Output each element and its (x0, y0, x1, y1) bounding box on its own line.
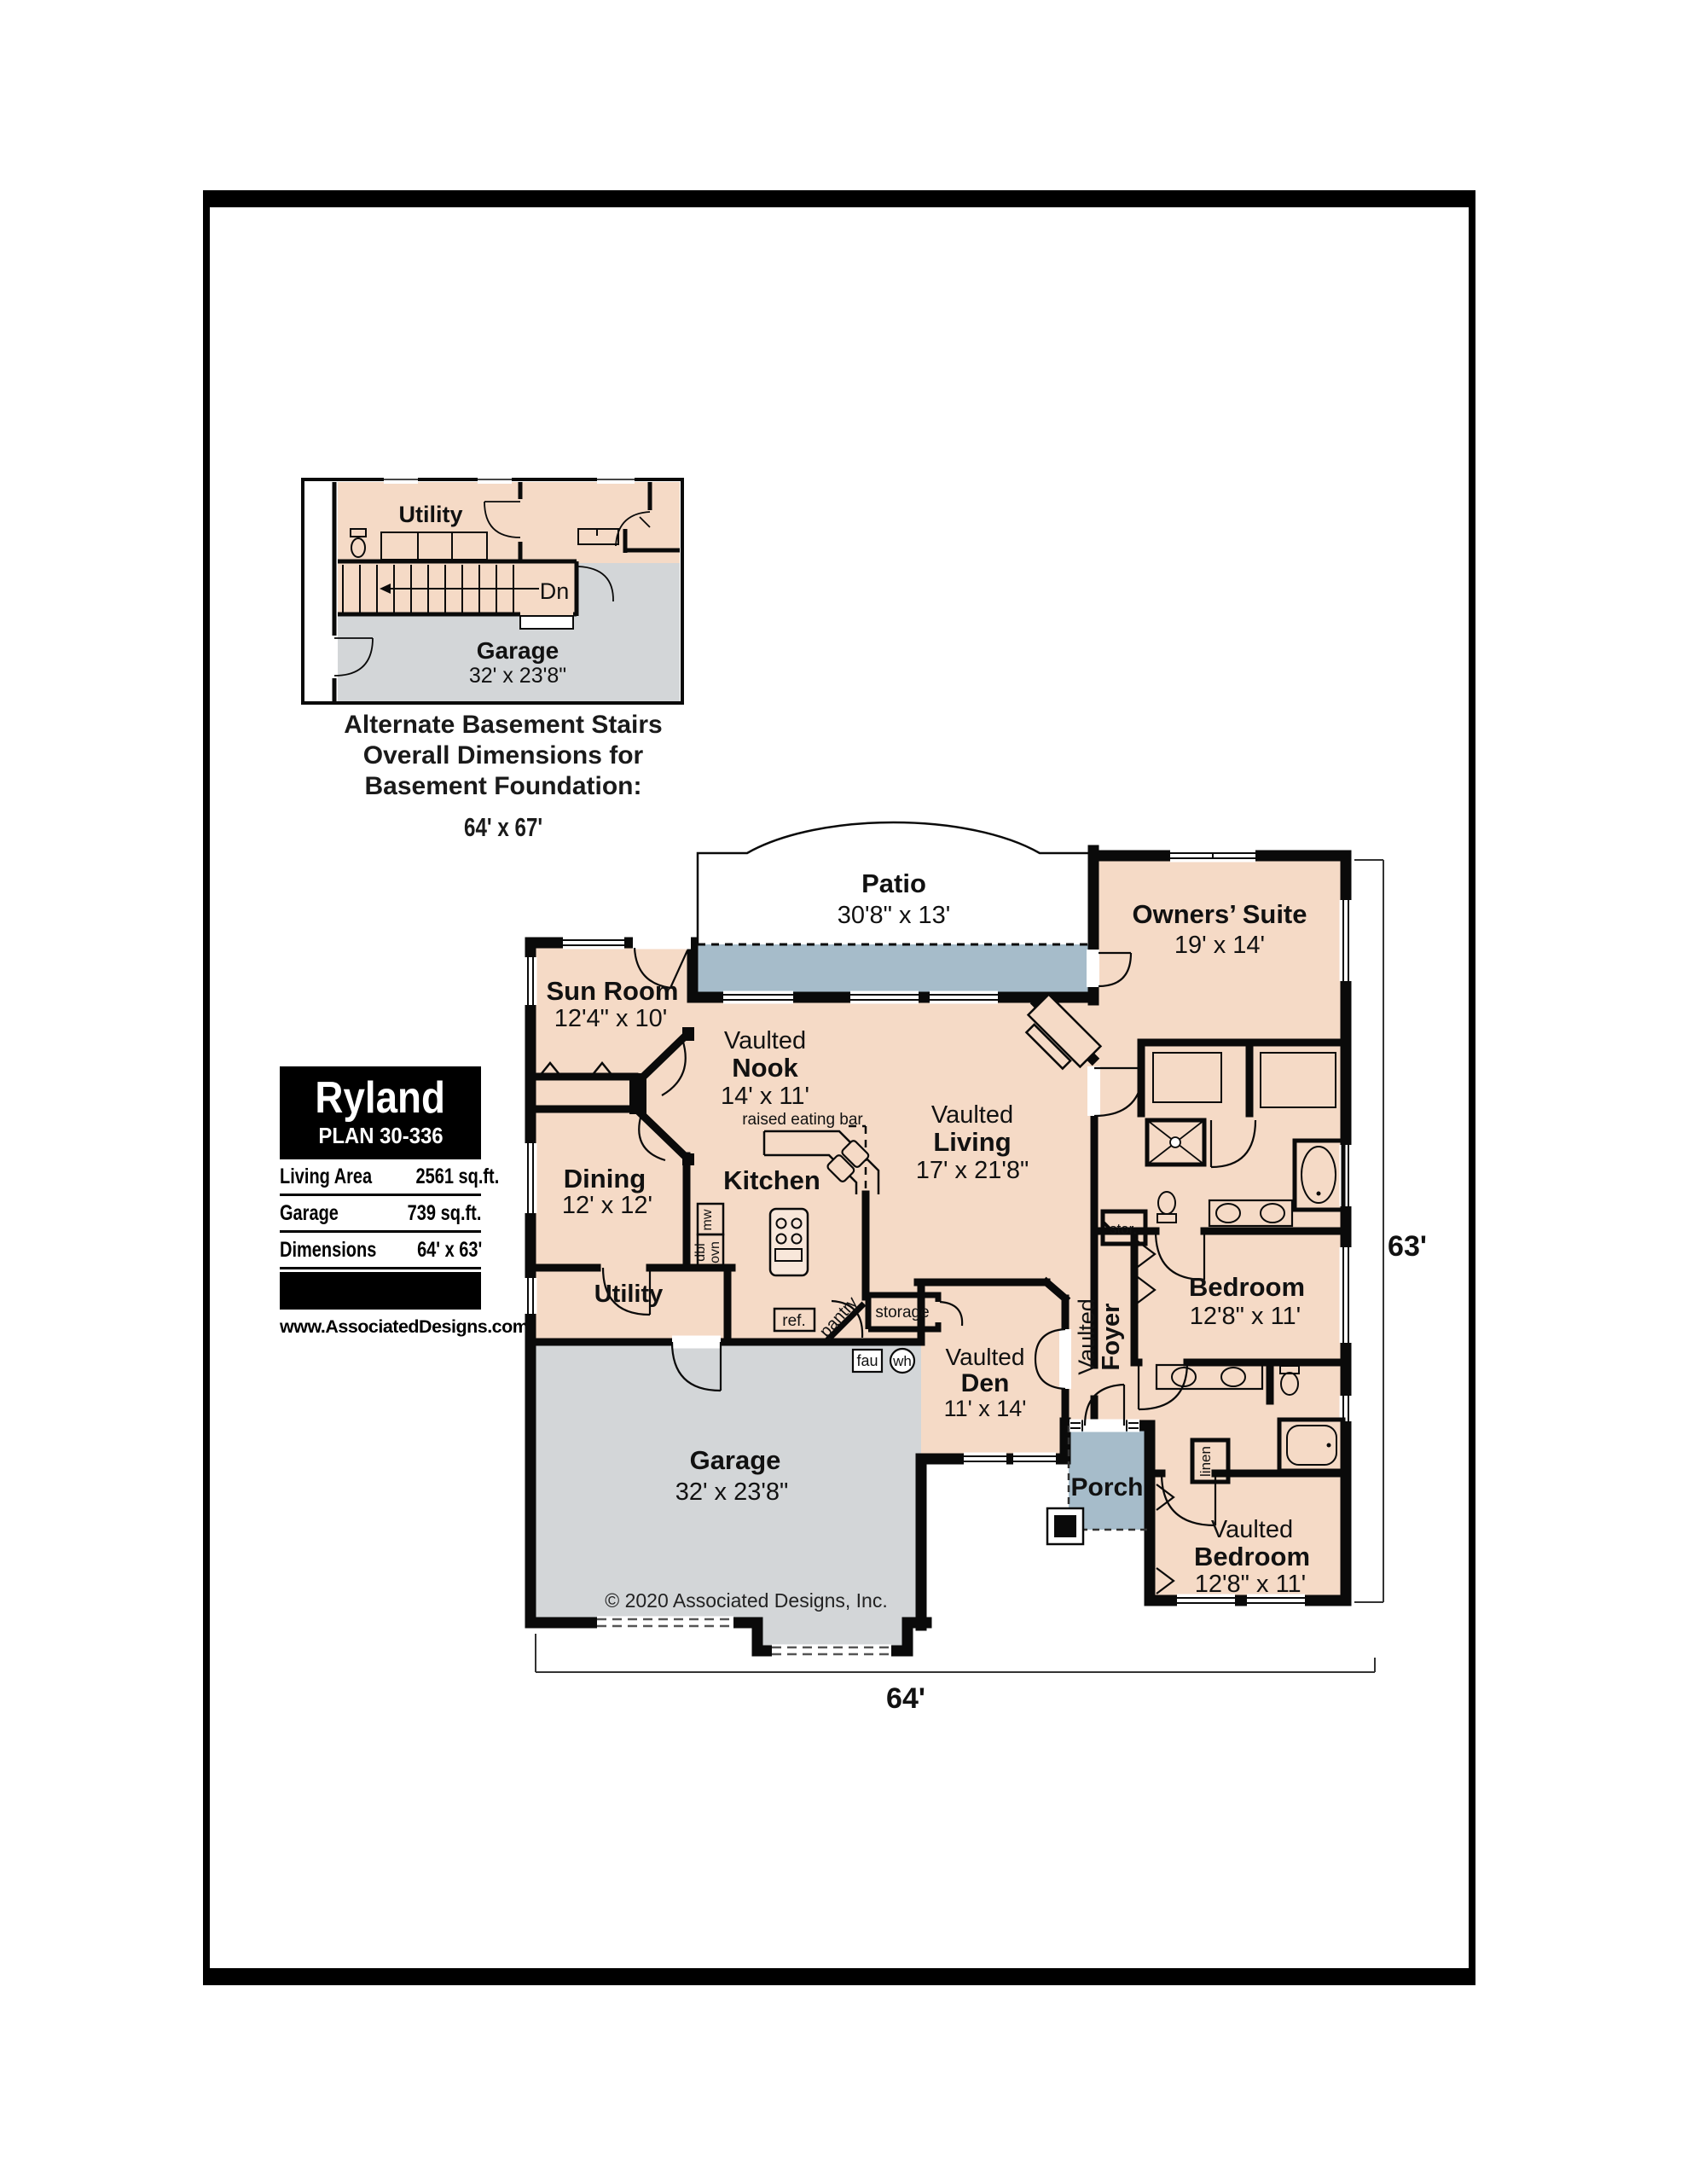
patio-dims: 30'8" x 13' (838, 902, 951, 929)
shower-drain (1170, 1137, 1180, 1147)
inset-garage-dims: 32' x 23'8" (469, 664, 566, 688)
porch-label: Porch (1070, 1473, 1143, 1501)
garage-dims: 32' x 23'8" (675, 1478, 789, 1506)
width-dim-line (536, 1634, 1375, 1672)
sun-room-dims: 12'4" x 10' (554, 1005, 668, 1032)
living-dims: 17' x 21'8" (916, 1157, 1029, 1184)
fau-label: fau (856, 1352, 878, 1369)
patio-label: Patio (861, 868, 926, 898)
den-label: Den (961, 1369, 1010, 1397)
dbl-label: dbl (693, 1243, 708, 1261)
patio-covered-fill (698, 944, 1089, 992)
wh-label: wh (892, 1353, 912, 1369)
bedroom1-label: Bedroom (1189, 1272, 1305, 1302)
plan-number: PLAN 30-336 (318, 1123, 443, 1149)
tub-drain (1327, 1443, 1331, 1448)
bedroom2-label: Bedroom (1194, 1542, 1310, 1571)
porch-column (1054, 1515, 1076, 1537)
bedroom2-vaulted-label: Vaulted (1211, 1516, 1293, 1543)
spec-value: 739 sq.ft. (407, 1201, 481, 1226)
foyer-label: Foyer (1098, 1304, 1125, 1371)
spec-row-dimensions: Dimensions 64' x 63' (280, 1233, 481, 1269)
sun-room-label: Sun Room (547, 976, 679, 1006)
owners-suite-label: Owners’ Suite (1132, 899, 1307, 929)
owners-suite-dims: 19' x 14' (1174, 932, 1265, 959)
title-block-black-bar (280, 1272, 481, 1310)
stair-landing-step (520, 616, 573, 629)
spec-value: 64' x 63' (417, 1238, 482, 1263)
main-floor-plan: Patio 30'8" x 13' Owners’ Suite 19' x 14… (512, 802, 1441, 1757)
dining-label: Dining (564, 1164, 646, 1194)
microwave-label: mw (700, 1209, 715, 1230)
nook-vaulted-label: Vaulted (724, 1027, 806, 1054)
nook-label: Nook (732, 1053, 798, 1083)
inset-dn-label: Dn (540, 578, 570, 604)
spec-label: Dimensions (280, 1238, 376, 1263)
den-dims: 11' x 14' (944, 1396, 1027, 1421)
nook-dims: 14' x 11' (721, 1083, 809, 1110)
storage-label: storage (875, 1304, 929, 1321)
title-block-header: Ryland PLAN 30-336 (280, 1066, 481, 1159)
inset-basement-stairs-plan: Utility Dn Garage 32' x 23'8" (290, 465, 699, 721)
title-block: Ryland PLAN 30-336 Living Area 2561 sq.f… (280, 1066, 481, 1338)
spec-label: Garage (280, 1201, 339, 1226)
utility-label: Utility (594, 1281, 664, 1308)
inset-garage-label: Garage (477, 637, 559, 664)
dining-dims: 12' x 12' (562, 1192, 652, 1219)
caption-line-1: Alternate Basement Stairs (290, 710, 716, 741)
living-label: Living (933, 1127, 1011, 1157)
garage-label: Garage (690, 1445, 781, 1475)
spec-label: Living Area (280, 1165, 372, 1189)
kitchen-island (770, 1209, 808, 1275)
title-block-rows: Living Area 2561 sq.ft. Garage 739 sq.ft… (280, 1159, 481, 1269)
width-dimension-label: 64' (886, 1682, 925, 1715)
copyright-text: © 2020 Associated Designs, Inc. (605, 1589, 887, 1612)
ref-label: ref. (782, 1312, 805, 1330)
plan-name: Ryland (316, 1075, 446, 1121)
caption-line-3: Basement Foundation: (290, 771, 716, 802)
kitchen-label: Kitchen (723, 1165, 820, 1195)
website-text: www.AssociatedDesigns.com (280, 1316, 481, 1338)
tub-drain (1317, 1192, 1321, 1196)
spec-value: 2561 sq.ft. (416, 1165, 500, 1189)
inset-utility-label: Utility (398, 502, 462, 527)
living-vaulted-label: Vaulted (931, 1101, 1013, 1129)
eating-bar-label: raised eating bar (742, 1111, 863, 1129)
linen-label: linen (1197, 1446, 1214, 1477)
height-dimension-label: 63' (1388, 1230, 1427, 1263)
caption-line-2: Overall Dimensions for (290, 741, 716, 771)
ovn-label: ovn (708, 1241, 722, 1263)
height-dim-line (1354, 860, 1383, 1602)
den-vaulted-label: Vaulted (946, 1344, 1025, 1370)
spec-row-living-area: Living Area 2561 sq.ft. (280, 1159, 481, 1196)
spec-row-garage: Garage 739 sq.ft. (280, 1196, 481, 1233)
bedroom1-dims: 12'8" x 11' (1190, 1303, 1301, 1330)
stor-label: stor. (1110, 1221, 1137, 1237)
bedroom2-dims: 12'8" x 11' (1195, 1571, 1306, 1598)
foyer-vaulted-label: Vaulted (1074, 1298, 1099, 1375)
plan-sheet: Utility Dn Garage 32' x 23'8" Alternate … (0, 0, 1687, 2184)
